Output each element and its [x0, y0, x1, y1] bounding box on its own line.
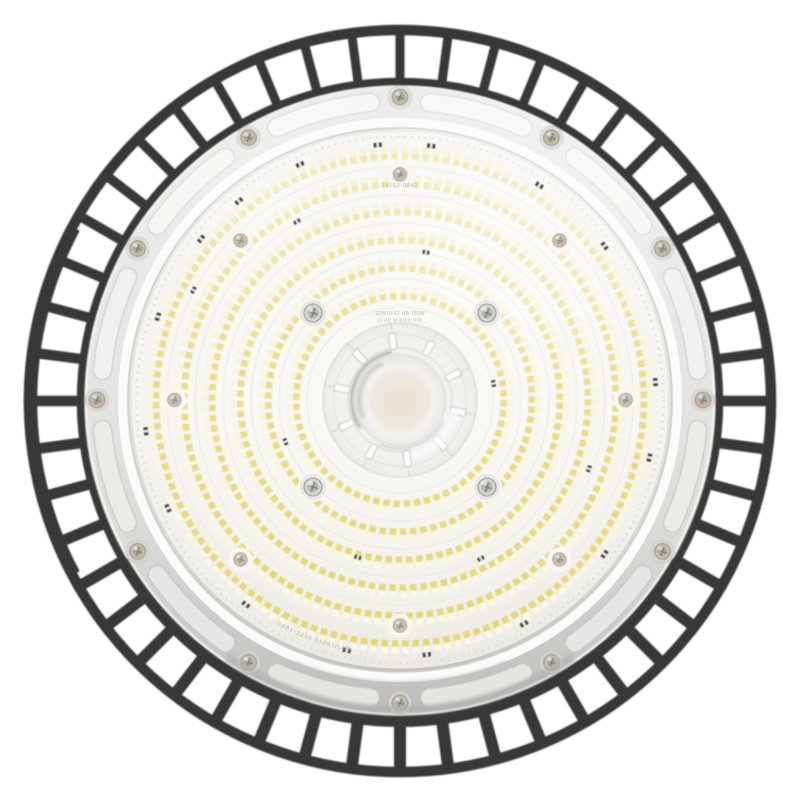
svg-text:1DB10-S1 HB 150W: 1DB10-S1 HB 150W — [375, 311, 425, 317]
svg-text:21 000 lm 4000K IP65: 21 000 lm 4000K IP65 — [377, 318, 423, 323]
svg-text:60103-0542: 60103-0542 — [382, 183, 419, 189]
